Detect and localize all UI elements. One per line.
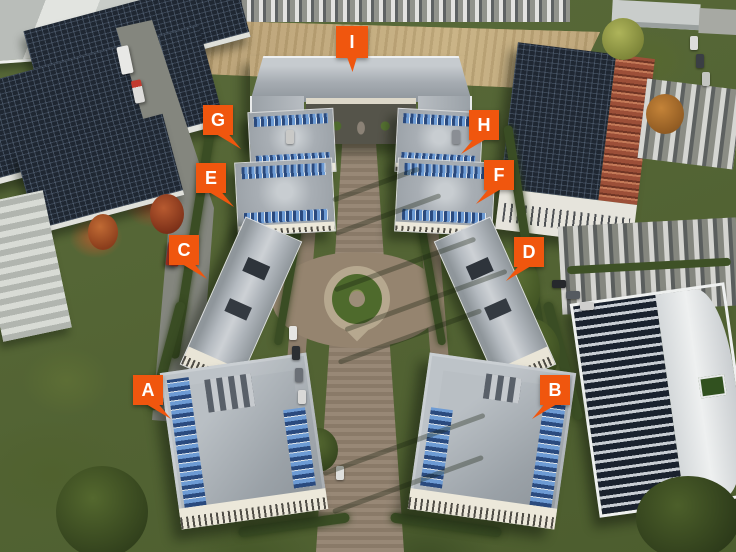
marker-building-h[interactable]: H [469,110,499,140]
solar-panels [283,407,316,488]
solar-panels [403,113,477,127]
skylight [224,298,252,321]
autumn-tree [88,214,118,250]
marker-letter: F [494,166,505,184]
rooftop-hvac-units [483,373,522,403]
car [566,291,580,299]
marker-building-d[interactable]: D [514,237,544,267]
marker-letter: H [478,116,491,134]
marker-letter: C [178,241,191,259]
tree [602,18,644,60]
car [286,130,294,144]
rooftop-hvac-units [204,373,256,412]
marker-letter: E [205,169,217,187]
car [295,368,303,382]
car [580,302,594,310]
skylight [484,298,512,321]
marker-building-b[interactable]: B [540,375,570,405]
marker-letter: I [349,33,354,51]
roundabout-center [349,291,365,307]
car [289,326,297,340]
tree [636,476,736,552]
tree [56,466,148,552]
marker-building-a[interactable]: A [133,375,163,405]
autumn-tree [150,194,184,234]
solar-panels [241,163,326,179]
marker-building-i[interactable]: I [336,26,368,58]
aerial-photo: A B C D E F G H I [0,0,736,552]
car [690,36,698,50]
marker-building-c[interactable]: C [169,235,199,265]
marker-building-e[interactable]: E [196,163,226,193]
hedge [567,258,731,275]
marker-building-f[interactable]: F [484,160,514,190]
car [552,280,566,288]
marker-letter: A [142,381,155,399]
marker-building-g[interactable]: G [203,105,233,135]
autumn-tree [646,94,684,134]
marker-letter: B [549,381,562,399]
roof-garden [698,374,727,398]
car [298,390,306,404]
solar-panels [254,113,328,127]
car [696,54,704,68]
skylight [242,257,270,280]
top-right-building-roof [698,8,736,35]
car [452,130,460,144]
marker-letter: D [523,243,536,261]
car [702,72,710,86]
car [292,346,300,360]
marker-letter: G [211,111,225,129]
